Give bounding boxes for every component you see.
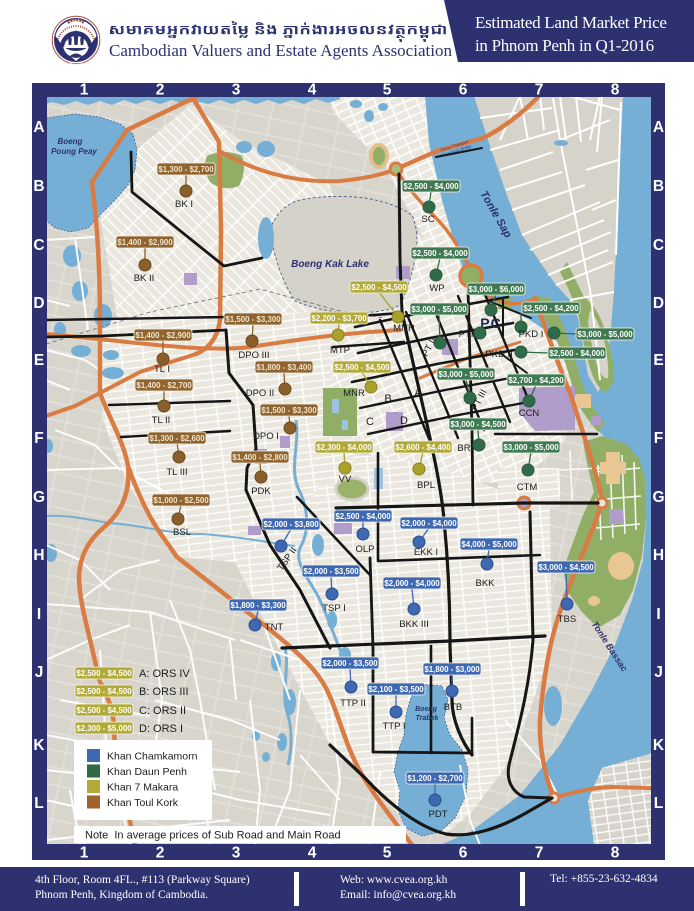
svg-text:E: E <box>34 352 44 369</box>
svg-text:BK I: BK I <box>175 199 193 210</box>
svg-text:D: D <box>653 295 664 312</box>
svg-text:C: C <box>653 237 664 254</box>
svg-text:WP: WP <box>429 283 444 294</box>
svg-text:L: L <box>654 795 663 812</box>
svg-text:$1,800 - $3,000: $1,800 - $3,000 <box>424 665 480 674</box>
svg-text:H: H <box>653 547 664 564</box>
svg-text:TL I: TL I <box>154 364 170 375</box>
svg-text:PDT: PDT <box>429 809 448 820</box>
svg-text:Poung Peay: Poung Peay <box>51 147 97 156</box>
svg-text:$2,000 - $3,800: $2,000 - $3,800 <box>263 520 319 529</box>
svg-text:B: B <box>384 393 391 405</box>
svg-text:PKD I: PKD I <box>519 329 544 340</box>
svg-text:$3,000 - $5,000: $3,000 - $5,000 <box>438 370 494 379</box>
svg-text:TTP I: TTP I <box>382 721 405 732</box>
svg-text:$1,300 - $2,600: $1,300 - $2,600 <box>149 434 205 443</box>
svg-text:$2,300 - $5,000: $2,300 - $5,000 <box>76 724 132 733</box>
svg-text:B: ORS III: B: ORS III <box>139 686 189 698</box>
svg-text:VV: VV <box>339 474 352 485</box>
svg-text:$4,000 - $5,000: $4,000 - $5,000 <box>461 540 517 549</box>
svg-text:I: I <box>37 606 41 623</box>
svg-text:TBS: TBS <box>558 614 576 625</box>
svg-text:TNT: TNT <box>265 622 284 633</box>
svg-text:E: E <box>653 352 663 369</box>
svg-text:DPO III: DPO III <box>238 350 269 361</box>
svg-text:$3,000 - $4,500: $3,000 - $4,500 <box>538 563 594 572</box>
svg-text:DPO I: DPO I <box>253 431 279 442</box>
svg-text:BKK: BKK <box>475 578 495 589</box>
svg-text:$3,000 - $6,000: $3,000 - $6,000 <box>468 285 524 294</box>
svg-text:Khan 7 Makara: Khan 7 Makara <box>107 782 178 794</box>
svg-text:A: A <box>33 119 44 136</box>
svg-text:C: ORS II: C: ORS II <box>139 705 186 717</box>
svg-text:K: K <box>33 737 45 754</box>
svg-text:Trabek: Trabek <box>416 715 440 722</box>
svg-text:$2,500 - $4,500: $2,500 - $4,500 <box>76 687 132 696</box>
svg-text:$1,800 - $3,300: $1,800 - $3,300 <box>230 601 286 610</box>
svg-text:$2,600 - $4,400: $2,600 - $4,400 <box>395 443 451 452</box>
svg-text:$3,000 - $5,000: $3,000 - $5,000 <box>411 305 467 314</box>
svg-text:$1,400 - $2,900: $1,400 - $2,900 <box>117 238 173 247</box>
svg-text:OLP: OLP <box>355 544 374 555</box>
svg-text:$2,500 - $4,500: $2,500 - $4,500 <box>351 283 407 292</box>
svg-text:BTB: BTB <box>444 702 462 713</box>
svg-text:$2,500 - $4,000: $2,500 - $4,000 <box>549 349 605 358</box>
svg-text:$2,300 - $4,000: $2,300 - $4,000 <box>316 443 372 452</box>
svg-text:MNR: MNR <box>393 323 415 334</box>
svg-text:Boeng: Boeng <box>415 706 438 713</box>
svg-text:TTP II: TTP II <box>340 698 366 709</box>
svg-text:$1,300 - $2,700: $1,300 - $2,700 <box>158 165 214 174</box>
svg-text:SC: SC <box>421 214 434 225</box>
svg-text:MNR: MNR <box>343 388 365 399</box>
svg-text:$3,000 - $5,000: $3,000 - $5,000 <box>577 330 633 339</box>
svg-text:$2,100 - $3,500: $2,100 - $3,500 <box>368 685 424 694</box>
svg-text:$2,500 - $4,000: $2,500 - $4,000 <box>403 182 459 191</box>
svg-text:L: L <box>34 795 43 812</box>
svg-text:D: D <box>33 295 44 312</box>
svg-text:$1,400 - $2,700: $1,400 - $2,700 <box>136 381 192 390</box>
svg-text:I: I <box>656 606 660 623</box>
svg-text:$2,500 - $4,200: $2,500 - $4,200 <box>523 304 579 313</box>
svg-text:$1,200 - $2,700: $1,200 - $2,700 <box>407 774 463 783</box>
svg-text:J: J <box>35 664 44 681</box>
svg-text:TL II: TL II <box>152 415 171 426</box>
svg-text:$2,000 - $3,500: $2,000 - $3,500 <box>303 567 359 576</box>
svg-text:PTI: PTI <box>459 329 474 340</box>
svg-text:TL III: TL III <box>166 467 187 478</box>
svg-text:$3,000 - $4,500: $3,000 - $4,500 <box>450 420 506 429</box>
svg-text:Khan Toul Kork: Khan Toul Kork <box>107 797 179 809</box>
svg-text:Khan Chamkamorn: Khan Chamkamorn <box>107 751 198 763</box>
svg-text:$1,400 - $2,900: $1,400 - $2,900 <box>135 331 191 340</box>
svg-text:$2,500 - $4,000: $2,500 - $4,000 <box>412 249 468 258</box>
svg-text:CTM: CTM <box>517 482 538 493</box>
svg-text:$2,500 - $4,000: $2,500 - $4,000 <box>335 512 391 521</box>
svg-text:D: D <box>400 415 408 427</box>
svg-text:$1,000 - $2,500: $1,000 - $2,500 <box>153 496 209 505</box>
svg-text:$2,000 - $4,000: $2,000 - $4,000 <box>401 519 457 528</box>
svg-text:PKD II: PKD II <box>485 349 512 360</box>
svg-text:BK II: BK II <box>134 273 155 284</box>
svg-text:K: K <box>653 737 665 754</box>
svg-text:BKK III: BKK III <box>399 619 429 630</box>
svg-text:$1,500 - $3,300: $1,500 - $3,300 <box>261 406 317 415</box>
svg-text:$1,400 - $2,800: $1,400 - $2,800 <box>232 453 288 462</box>
svg-text:B: B <box>33 178 44 195</box>
svg-text:BPL: BPL <box>417 480 435 491</box>
svg-text:TSP I: TSP I <box>322 603 346 614</box>
svg-text:BR: BR <box>457 443 470 454</box>
svg-text:$1,800 - $3,400: $1,800 - $3,400 <box>256 363 312 372</box>
svg-text:$2,500 - $4,500: $2,500 - $4,500 <box>334 363 390 372</box>
svg-text:MTP: MTP <box>330 345 350 356</box>
svg-text:C: C <box>33 237 44 254</box>
svg-text:DPO II: DPO II <box>246 388 275 399</box>
svg-text:A: ORS IV: A: ORS IV <box>139 668 190 680</box>
svg-text:BSL: BSL <box>173 527 191 538</box>
svg-text:F: F <box>654 430 663 447</box>
svg-text:G: G <box>33 489 45 506</box>
svg-text:F: F <box>34 430 43 447</box>
svg-text:EKK I: EKK I <box>414 547 438 558</box>
svg-text:J: J <box>654 664 663 681</box>
svg-text:C: C <box>366 416 374 428</box>
svg-text:$2,200 - $3,700: $2,200 - $3,700 <box>311 314 367 323</box>
svg-text:$2,000 - $4,000: $2,000 - $4,000 <box>384 579 440 588</box>
svg-text:B: B <box>653 178 664 195</box>
svg-text:A: A <box>653 119 664 136</box>
svg-text:$3,000 - $5,000: $3,000 - $5,000 <box>503 443 559 452</box>
svg-text:$2,000 - $3,500: $2,000 - $3,500 <box>322 659 378 668</box>
svg-text:PDK: PDK <box>251 486 271 497</box>
svg-text:Boeng Kak Lake: Boeng Kak Lake <box>291 259 369 270</box>
svg-text:Boeng: Boeng <box>58 137 83 146</box>
svg-text:G: G <box>652 489 664 506</box>
svg-text:$2,500 - $4,500: $2,500 - $4,500 <box>76 706 132 715</box>
svg-text:H: H <box>33 547 44 564</box>
svg-text:CCN: CCN <box>519 408 540 419</box>
svg-text:$1,500 - $3,300: $1,500 - $3,300 <box>225 315 281 324</box>
svg-text:Note In average prices of Sub: Note In average prices of Sub Road and M… <box>85 830 341 842</box>
svg-text:Khan Daun Penh: Khan Daun Penh <box>107 766 187 778</box>
svg-text:A: A <box>414 387 422 399</box>
svg-text:D: ORS I: D: ORS I <box>139 723 183 735</box>
svg-text:$2,700 - $4,200: $2,700 - $4,200 <box>508 376 564 385</box>
svg-text:$2,500 - $4,500: $2,500 - $4,500 <box>76 669 132 678</box>
